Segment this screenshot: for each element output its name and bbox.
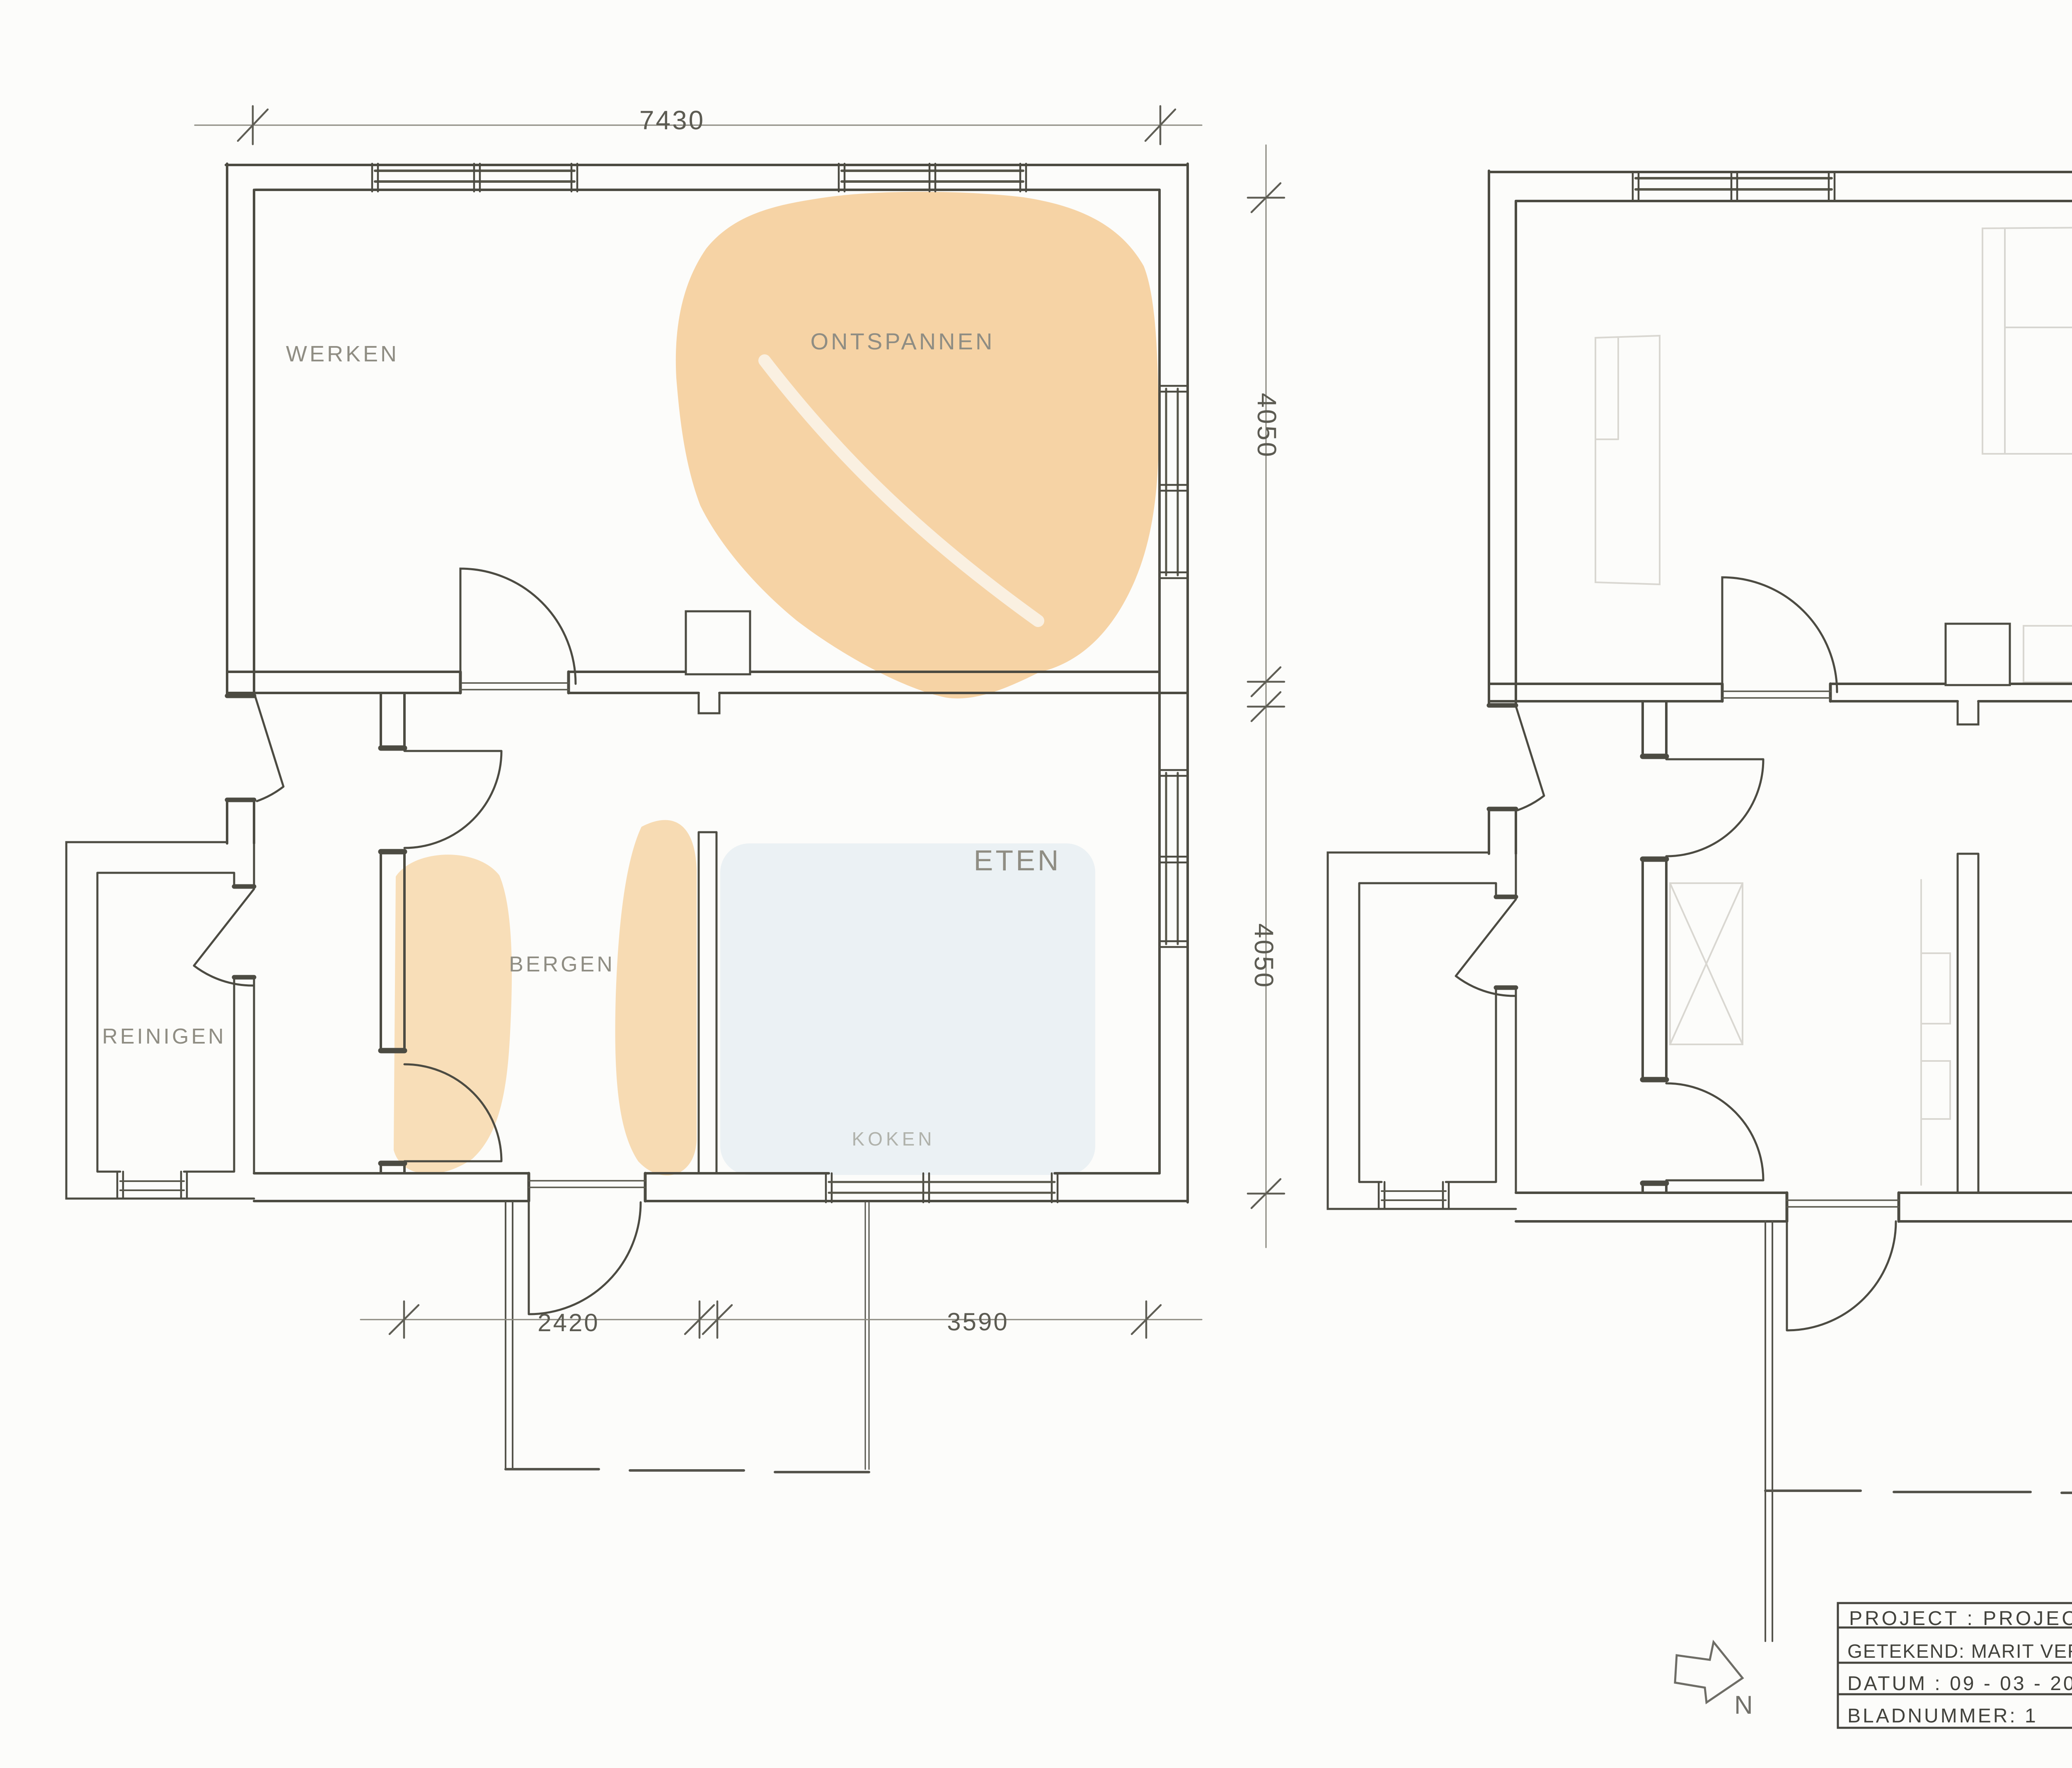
- svg-text:3590: 3590: [947, 1308, 1009, 1336]
- svg-text:BLADNUMMER: 1: BLADNUMMER: 1: [1847, 1705, 2038, 1727]
- svg-text:4050: 4050: [1252, 393, 1282, 458]
- svg-text:N: N: [1734, 1691, 1753, 1720]
- svg-text:PROJECT : PROJECT DENEMARKEN: PROJECT : PROJECT DENEMARKEN: [1849, 1608, 2072, 1630]
- svg-text:DATUM : 09 - 03 - 2021: DATUM : 09 - 03 - 2021: [1847, 1673, 2072, 1695]
- svg-text:REINIGEN: REINIGEN: [102, 1024, 226, 1049]
- svg-text:KOKEN: KOKEN: [852, 1128, 935, 1150]
- svg-text:BERGEN: BERGEN: [509, 952, 615, 976]
- svg-text:ETEN: ETEN: [974, 844, 1061, 877]
- svg-text:GETEKEND: MARIT VERMEIJ: GETEKEND: MARIT VERMEIJ: [1847, 1640, 2072, 1662]
- svg-text:2420: 2420: [537, 1309, 599, 1337]
- svg-text:7430: 7430: [639, 105, 705, 135]
- svg-text:4050: 4050: [1249, 923, 1279, 989]
- svg-text:ONTSPANNEN: ONTSPANNEN: [811, 328, 995, 354]
- svg-text:WERKEN: WERKEN: [286, 341, 399, 366]
